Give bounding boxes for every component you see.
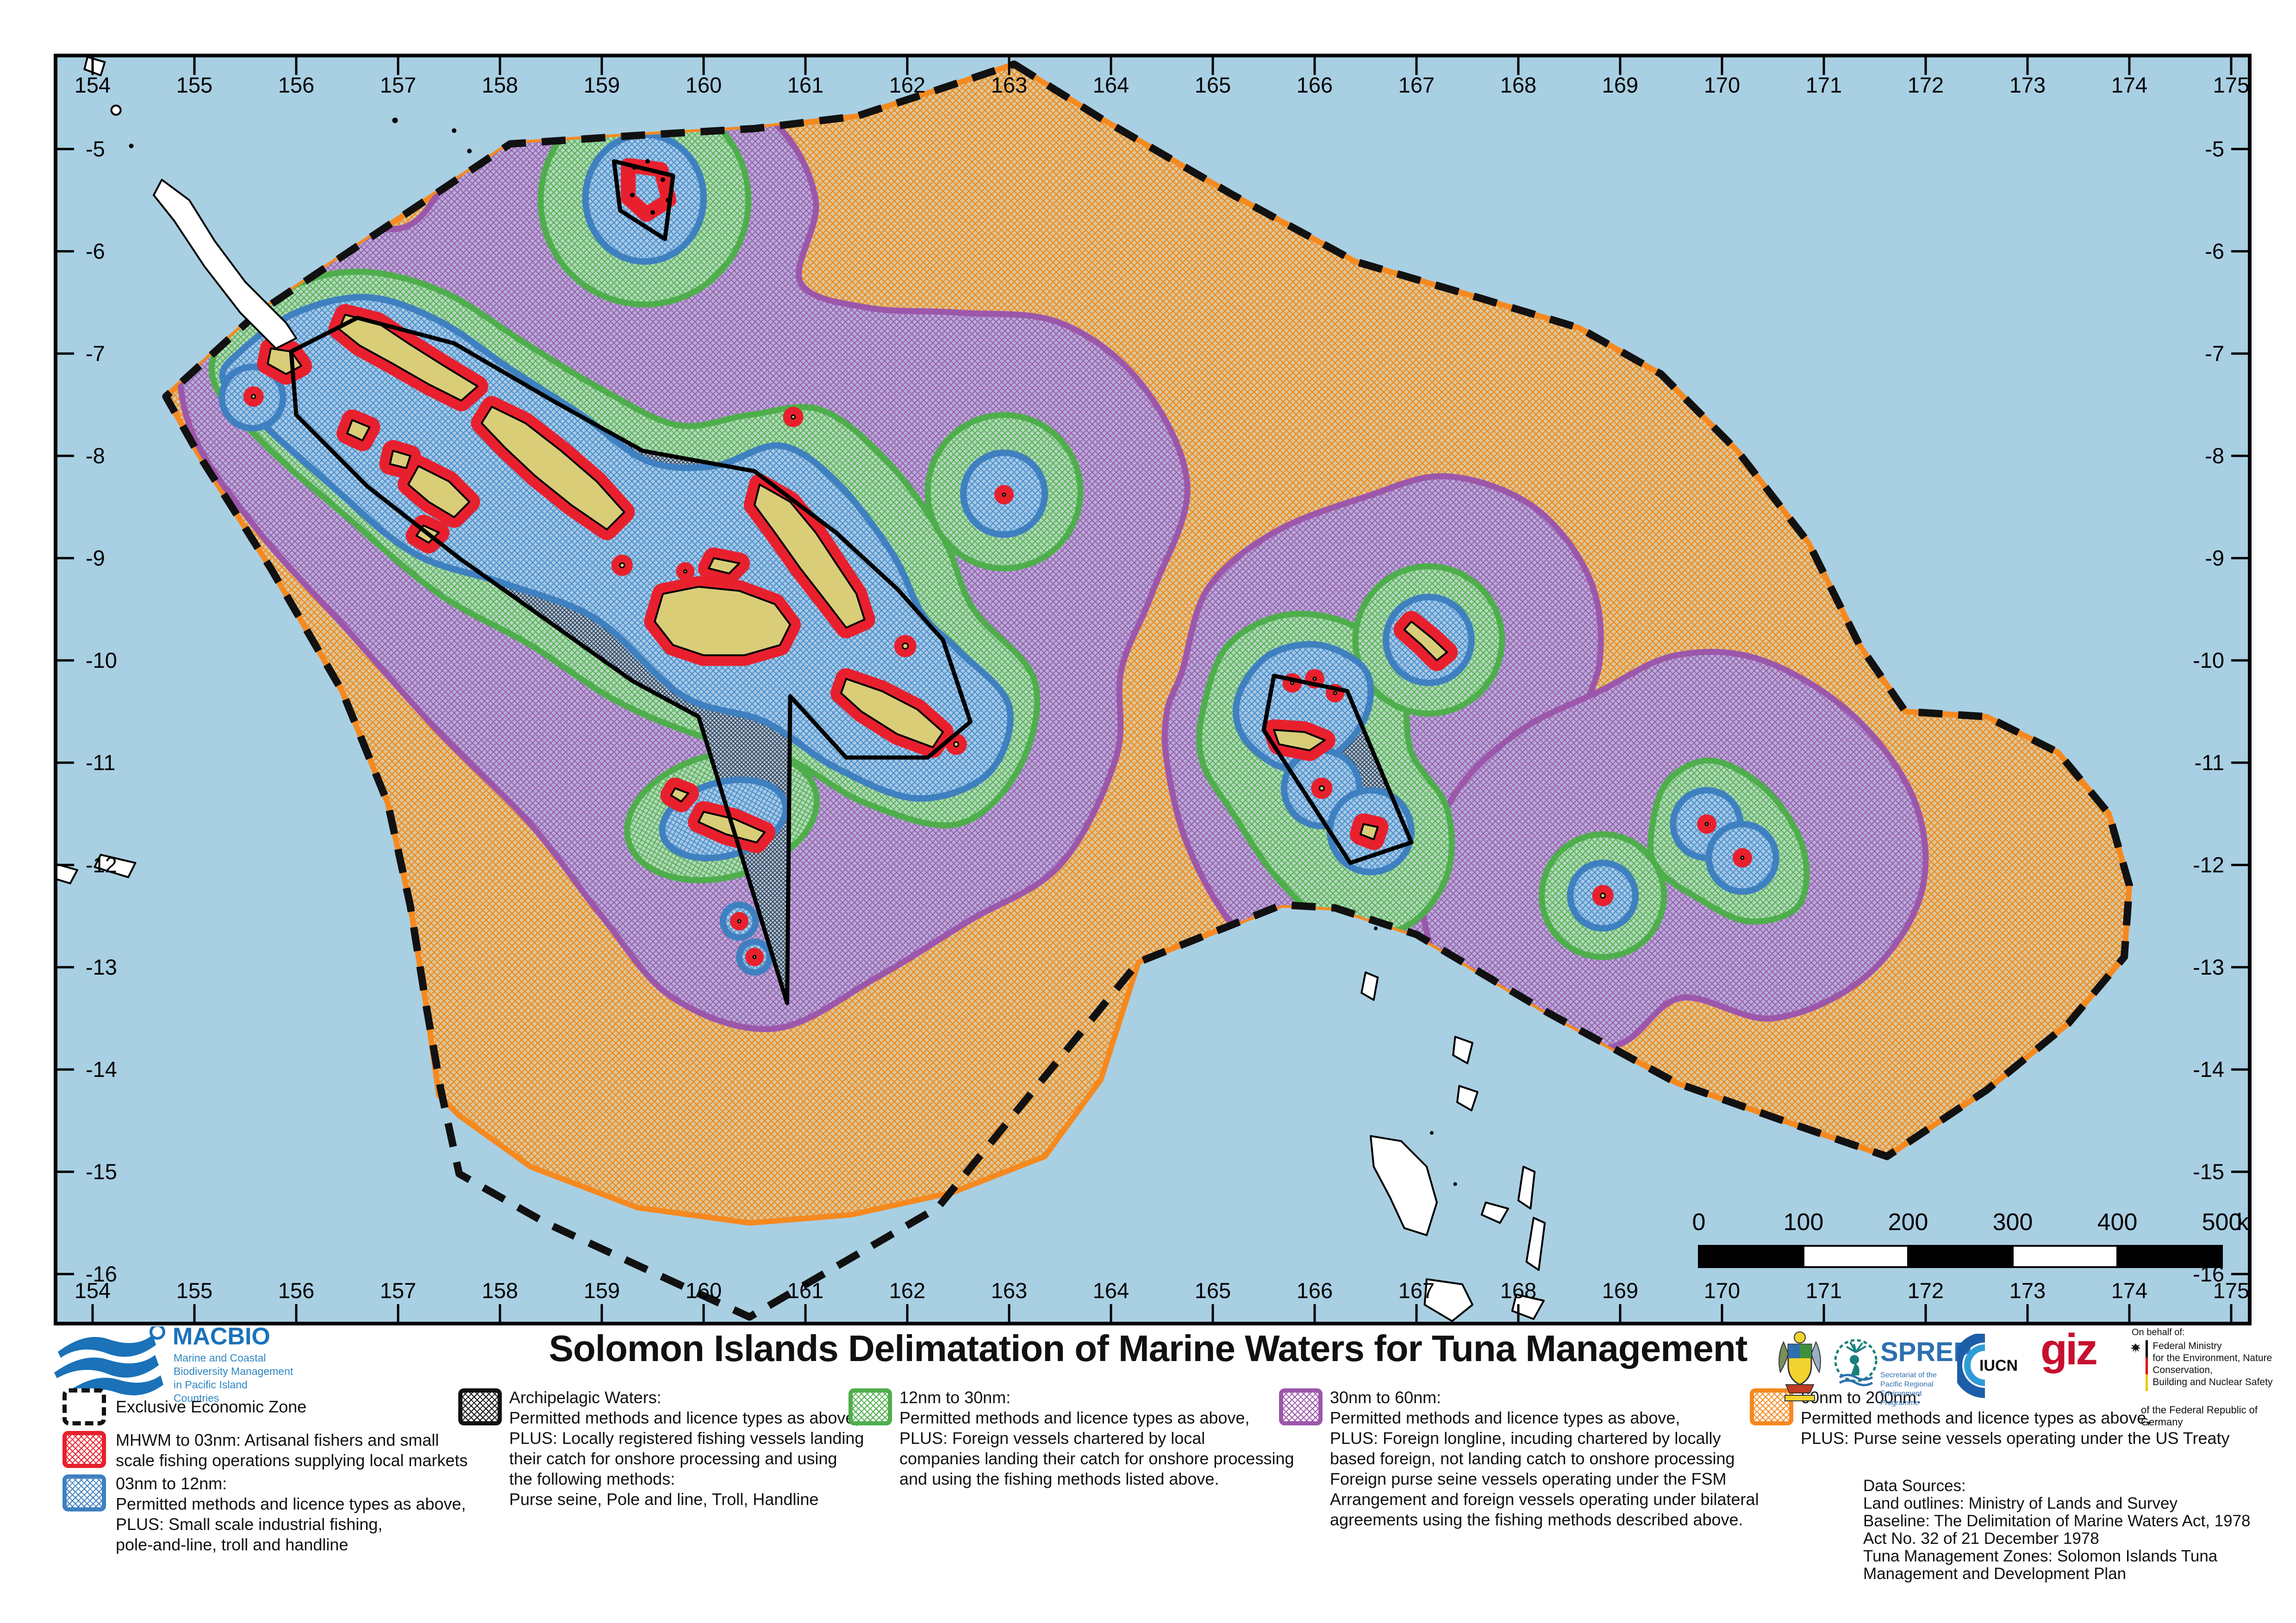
axis-label-lon-top: 167 — [1398, 73, 1435, 97]
axis-label-lon-top: 166 — [1297, 73, 1333, 97]
axis-label-lat-right: -15 — [2193, 1159, 2224, 1184]
atoll-islet — [630, 193, 635, 197]
german-flag-stripe — [2146, 1340, 2148, 1391]
scale-bar-segment — [1908, 1246, 2013, 1267]
axis-label-lat-left: -13 — [86, 955, 117, 979]
scale-bar-label: 0 — [1692, 1209, 1706, 1236]
axis-label-lat-left: -16 — [86, 1262, 117, 1286]
axis-label-lat-right: -16 — [2193, 1262, 2224, 1286]
axis-label-lon-bottom: 160 — [686, 1278, 722, 1303]
axis-label-lon-bottom: 168 — [1500, 1278, 1536, 1303]
axis-label-lon-top: 165 — [1195, 73, 1231, 97]
island — [684, 570, 686, 573]
island — [954, 742, 959, 746]
legend-label-eez: Exclusive Economic Zone — [116, 1397, 306, 1417]
axis-label-lon-bottom: 167 — [1398, 1278, 1435, 1303]
axis-label-lat-left: -5 — [86, 137, 105, 161]
axis-label-lon-top: 168 — [1500, 73, 1536, 97]
axis-label-lon-bottom: 170 — [1704, 1278, 1740, 1303]
island — [738, 920, 741, 923]
sprep-subtitle: Secretariat of the Pacific Regional Envi… — [1880, 1371, 1954, 1408]
macbio-waves-icon — [53, 1326, 169, 1396]
axis-label-lon-bottom: 172 — [1908, 1278, 1944, 1303]
axis-label-lat-left: -9 — [86, 546, 105, 570]
macbio-wordmark: MACBIO — [173, 1323, 270, 1350]
island — [903, 643, 908, 649]
islet-speck — [1454, 1182, 1457, 1186]
island — [1003, 493, 1005, 496]
axis-label-lat-right: -9 — [2205, 546, 2224, 570]
axis-label-lon-bottom: 159 — [584, 1278, 620, 1303]
island — [620, 563, 624, 567]
foreign-land — [112, 106, 121, 115]
axis-label-lon-bottom: 161 — [787, 1278, 824, 1303]
axis-label-lat-right: -10 — [2193, 648, 2224, 672]
legend-swatch-03nm — [62, 1474, 106, 1511]
axis-label-lat-left: -7 — [86, 341, 105, 366]
axis-label-lat-left: -12 — [86, 852, 117, 877]
atoll-islet — [650, 210, 655, 215]
giz-logo: giz — [2040, 1325, 2096, 1375]
sprep-logo: SPREP Secretariat of the Pacific Regiona… — [1834, 1333, 1954, 1400]
island — [1705, 823, 1708, 826]
map-canvas: 0100200300400500km1541541551551561561571… — [0, 0, 2296, 1333]
axis-label-lon-top: 164 — [1093, 73, 1129, 97]
island — [1334, 692, 1336, 695]
axis-label-lon-bottom: 166 — [1297, 1278, 1333, 1303]
axis-label-lat-right: -6 — [2205, 239, 2224, 263]
island — [1741, 857, 1744, 859]
axis-label-lon-bottom: 171 — [1806, 1278, 1842, 1303]
axis-label-lon-top: 170 — [1704, 73, 1740, 97]
axis-label-lon-top: 161 — [787, 73, 824, 97]
axis-label-lon-bottom: 162 — [889, 1278, 925, 1303]
axis-label-lat-left: -14 — [86, 1057, 117, 1082]
zone-03-12nm — [586, 135, 704, 261]
axis-label-lon-top: 173 — [2009, 73, 2046, 97]
axis-label-lon-bottom: 164 — [1093, 1278, 1129, 1303]
legend-text-30-60nm: 30nm to 60nm: Permitted methods and lice… — [1330, 1387, 1759, 1530]
axis-label-lon-bottom: 174 — [2111, 1278, 2147, 1303]
island — [792, 415, 795, 419]
axis-label-lon-top: 159 — [584, 73, 620, 97]
axis-label-lat-left: -6 — [86, 239, 105, 263]
sprep-icon — [1834, 1333, 1878, 1398]
ministry-on-behalf: On behalf of: — [2132, 1327, 2185, 1338]
axis-label-lon-bottom: 157 — [380, 1278, 416, 1303]
island — [1601, 893, 1605, 898]
axis-label-lat-right: -11 — [2195, 750, 2224, 775]
iucn-wordmark: IUCN — [1979, 1357, 2017, 1374]
axis-label-lon-top: 171 — [1806, 73, 1842, 97]
axis-label-lat-right: -12 — [2193, 852, 2224, 877]
axis-label-lon-top: 154 — [75, 73, 111, 97]
legend-text-mhwm: MHWM to 03nm: Artisanal fishers and smal… — [116, 1430, 468, 1471]
atoll-islet — [645, 159, 650, 164]
legend-swatch-12-30nm — [849, 1388, 892, 1425]
axis-label-lon-bottom: 155 — [176, 1278, 212, 1303]
legend-text-archipelagic: Archipelagic Waters: Permitted methods a… — [509, 1387, 864, 1510]
legend-swatch-archipelagic — [458, 1388, 502, 1425]
island — [1319, 786, 1324, 790]
atoll-islet — [661, 177, 665, 182]
axis-label-lon-top: 162 — [889, 73, 925, 97]
axis-label-lat-left: -10 — [86, 648, 117, 672]
axis-label-lon-top: 163 — [991, 73, 1027, 97]
islet-speck — [1430, 1131, 1434, 1135]
federal-eagle-icon — [2129, 1340, 2142, 1356]
axis-label-lon-top: 160 — [686, 73, 722, 97]
axis-label-lon-top: 157 — [380, 73, 416, 97]
islet-speck — [392, 118, 398, 123]
axis-label-lat-left: -15 — [86, 1159, 117, 1184]
legend-text-03nm: 03nm to 12nm: Permitted methods and lice… — [116, 1474, 466, 1555]
scale-bar-label: 100 — [1784, 1209, 1824, 1236]
axis-label-lon-bottom: 165 — [1195, 1278, 1231, 1303]
legend-text-12-30nm: 12nm to 30nm: Permitted methods and lice… — [899, 1387, 1294, 1489]
axis-label-lat-right: -8 — [2205, 443, 2224, 468]
data-sources: Data Sources: Land outlines: Ministry of… — [1863, 1477, 2251, 1583]
axis-label-lon-bottom: 158 — [482, 1278, 518, 1303]
axis-label-lat-left: -11 — [86, 750, 115, 775]
axis-label-lon-bottom: 173 — [2009, 1278, 2046, 1303]
axis-label-lat-left: -8 — [86, 443, 105, 468]
scale-bar-segment — [2013, 1246, 2117, 1267]
scale-bar-segment — [1699, 1246, 1803, 1267]
axis-label-lon-top: 172 — [1908, 73, 1944, 97]
axis-label-lat-right: -13 — [2193, 955, 2224, 979]
scale-bar-segment — [1803, 1246, 1908, 1267]
solomon-coat-of-arms-icon — [1772, 1328, 1828, 1409]
scale-bar-label: 500 — [2202, 1209, 2242, 1236]
legend-swatch-eez — [62, 1388, 106, 1425]
island — [1291, 682, 1294, 684]
island — [1313, 678, 1316, 680]
islet-speck — [129, 143, 134, 148]
islet-speck — [1374, 927, 1378, 930]
axis-label-lon-top: 169 — [1602, 73, 1638, 97]
page: { "map": { "axes": { "lon_labels": ["154… — [0, 0, 2296, 1623]
axis-label-lat-right: -7 — [2205, 341, 2224, 366]
island — [252, 395, 256, 398]
axis-label-lat-right: -5 — [2205, 137, 2224, 161]
islet-speck — [452, 128, 456, 133]
axis-label-lon-top: 156 — [278, 73, 314, 97]
axis-label-lon-top: 158 — [482, 73, 518, 97]
scale-bar-label: 200 — [1888, 1209, 1928, 1236]
axis-label-lat-right: -14 — [2193, 1057, 2224, 1082]
scale-bar-label: 400 — [2097, 1209, 2138, 1236]
axis-label-lon-bottom: 163 — [991, 1278, 1027, 1303]
island — [753, 956, 756, 958]
axis-label-lon-bottom: 156 — [278, 1278, 314, 1303]
axis-label-lon-bottom: 169 — [1602, 1278, 1638, 1303]
axis-label-lon-top: 155 — [176, 73, 212, 97]
scale-bar-label: 300 — [1993, 1209, 2033, 1236]
axis-label-lon-top: 175 — [2213, 73, 2249, 97]
ministry-subtext: of the Federal Republic of Germany — [2141, 1404, 2296, 1428]
legend-swatch-mhwm — [62, 1431, 106, 1468]
legend-swatch-30-60nm — [1279, 1388, 1323, 1425]
axis-label-lon-top: 174 — [2111, 73, 2147, 97]
german-ministry-logo: Federal Ministry for the Environment, Na… — [2129, 1340, 2296, 1428]
islet-speck — [467, 149, 472, 153]
ministry-text: Federal Ministry for the Environment, Na… — [2152, 1340, 2296, 1391]
iucn-logo: IUCN — [1957, 1334, 2017, 1401]
